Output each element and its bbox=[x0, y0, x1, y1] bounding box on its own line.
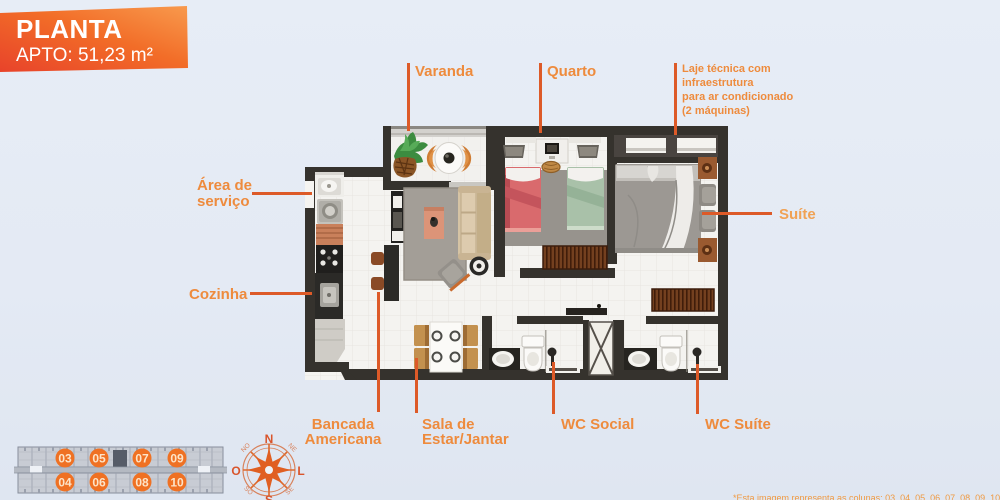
svg-text:Suíte: Suíte bbox=[779, 206, 816, 223]
svg-text:infraestrutura: infraestrutura bbox=[682, 77, 754, 89]
svg-text:05: 05 bbox=[92, 452, 106, 466]
svg-text:04: 04 bbox=[58, 476, 72, 490]
svg-text:07: 07 bbox=[135, 452, 149, 466]
svg-text:Varanda: Varanda bbox=[415, 63, 474, 80]
svg-text:WC Social: WC Social bbox=[561, 416, 634, 433]
svg-text:O: O bbox=[231, 464, 240, 478]
svg-text:Estar/Jantar: Estar/Jantar bbox=[422, 431, 509, 448]
svg-text:06: 06 bbox=[92, 476, 106, 490]
svg-text:S: S bbox=[265, 493, 273, 500]
svg-text:Laje técnica com: Laje técnica com bbox=[682, 63, 771, 75]
svg-text:08: 08 bbox=[135, 476, 149, 490]
svg-text:L: L bbox=[297, 464, 304, 478]
svg-text:N: N bbox=[265, 432, 274, 446]
svg-text:PLANTA: PLANTA bbox=[16, 14, 123, 44]
svg-text:WC Suíte: WC Suíte bbox=[705, 416, 771, 433]
svg-text:Cozinha: Cozinha bbox=[189, 286, 248, 303]
svg-text:Quarto: Quarto bbox=[547, 63, 596, 80]
svg-text:03: 03 bbox=[58, 452, 72, 466]
svg-text:10: 10 bbox=[170, 476, 184, 490]
svg-text:para ar condicionado: para ar condicionado bbox=[682, 91, 794, 103]
svg-text:*Esta imagem representa as col: *Esta imagem representa as colunas: 03, … bbox=[733, 493, 1000, 500]
svg-text:APTO: 51,23 m²: APTO: 51,23 m² bbox=[16, 45, 153, 66]
svg-text:Área de: Área de bbox=[197, 177, 252, 194]
svg-text:Americana: Americana bbox=[305, 431, 382, 448]
svg-text:09: 09 bbox=[170, 452, 184, 466]
svg-text:serviço: serviço bbox=[197, 193, 250, 210]
svg-text:(2 máquinas): (2 máquinas) bbox=[682, 105, 750, 117]
